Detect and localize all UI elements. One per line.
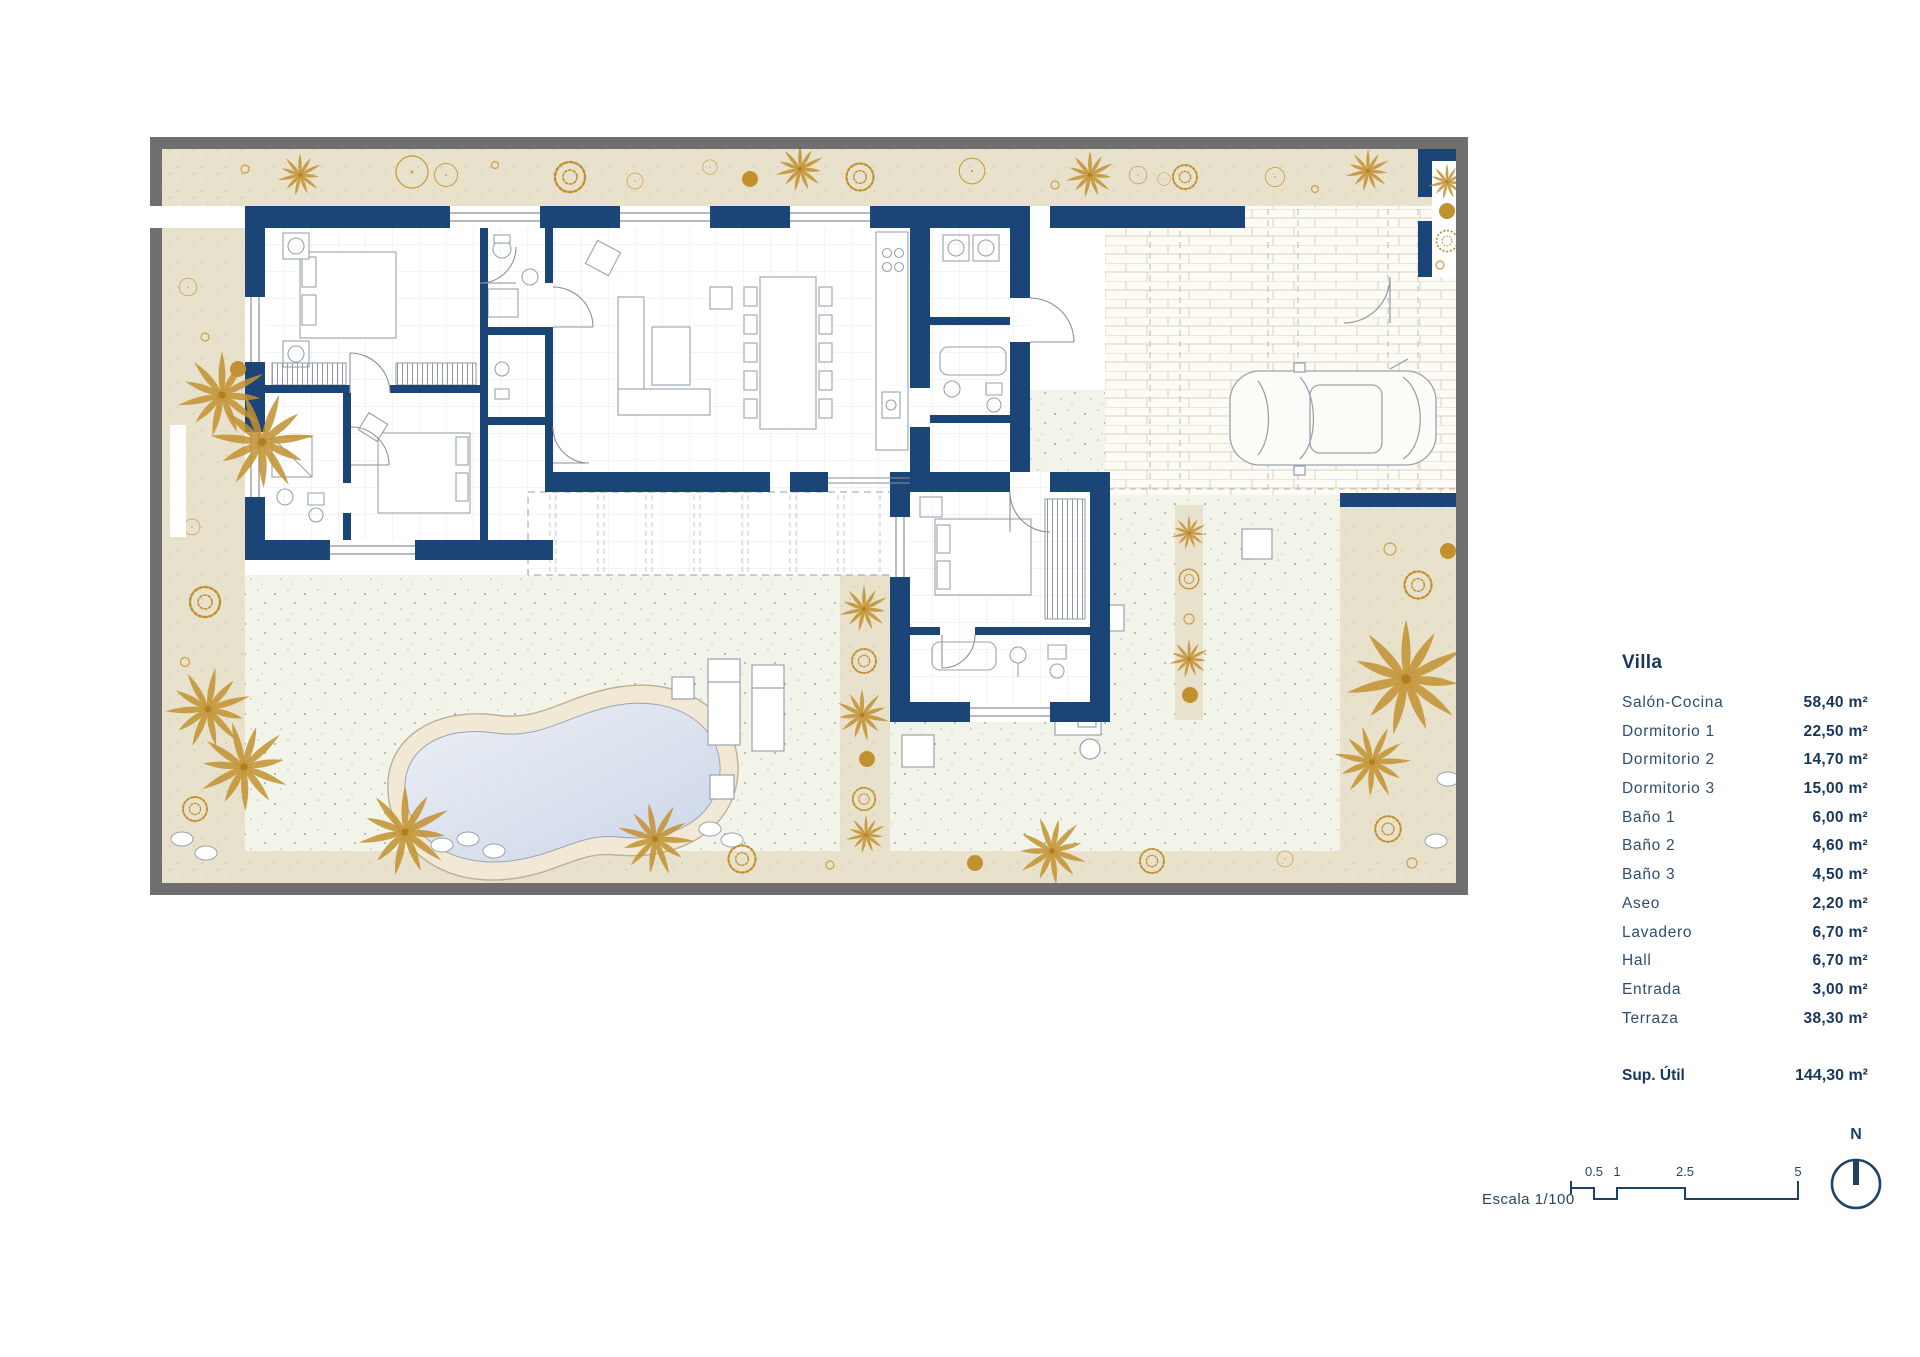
legend-row: Hall 6,70 m² bbox=[1622, 947, 1868, 976]
room-area: 15,00 m² bbox=[1804, 775, 1868, 804]
scale-bar: 0.5 1 2.5 5 bbox=[1566, 1164, 1818, 1214]
room-area: 6,00 m² bbox=[1812, 804, 1868, 833]
room-label: Baño 3 bbox=[1622, 861, 1675, 890]
room-label: Dormitorio 3 bbox=[1622, 775, 1715, 804]
room-label: Baño 1 bbox=[1622, 804, 1675, 833]
legend-row: Baño 2 4,60 m² bbox=[1622, 832, 1868, 861]
room-area: 6,70 m² bbox=[1812, 947, 1868, 976]
car bbox=[1230, 359, 1436, 475]
legend-row: Dormitorio 3 15,00 m² bbox=[1622, 775, 1868, 804]
legend-rows: Salón-Cocina 58,40 m² Dormitorio 1 22,50… bbox=[1622, 689, 1868, 1033]
room-label: Terraza bbox=[1622, 1005, 1679, 1034]
legend-row: Dormitorio 1 22,50 m² bbox=[1622, 718, 1868, 747]
legend-row: Terraza 38,30 m² bbox=[1622, 1005, 1868, 1034]
legend-row: Entrada 3,00 m² bbox=[1622, 976, 1868, 1005]
room-area: 38,30 m² bbox=[1804, 1005, 1868, 1034]
floor-plan bbox=[150, 137, 1468, 895]
scale-bar-graphic bbox=[1566, 1164, 1818, 1214]
room-label: Hall bbox=[1622, 947, 1652, 976]
legend-title: Villa bbox=[1622, 652, 1868, 674]
floor-plan-svg bbox=[150, 137, 1468, 895]
room-area: 4,60 m² bbox=[1812, 832, 1868, 861]
room-label: Dormitorio 2 bbox=[1622, 746, 1715, 775]
room-label: Entrada bbox=[1622, 976, 1681, 1005]
legend-total-label: Sup. Útil bbox=[1622, 1067, 1685, 1085]
room-area: 14,70 m² bbox=[1804, 746, 1868, 775]
legend-row: Dormitorio 2 14,70 m² bbox=[1622, 746, 1868, 775]
legend: Villa Salón-Cocina 58,40 m² Dormitorio 1… bbox=[1622, 652, 1868, 1085]
room-label: Salón-Cocina bbox=[1622, 689, 1723, 718]
room-area: 6,70 m² bbox=[1812, 919, 1868, 948]
north-label: N bbox=[1850, 1126, 1862, 1144]
legend-row: Lavadero 6,70 m² bbox=[1622, 919, 1868, 948]
room-label: Lavadero bbox=[1622, 919, 1692, 948]
legend-row: Salón-Cocina 58,40 m² bbox=[1622, 689, 1868, 718]
scale-label: Escala 1/100 bbox=[1482, 1191, 1575, 1208]
room-label: Aseo bbox=[1622, 890, 1660, 919]
room-area: 58,40 m² bbox=[1804, 689, 1868, 718]
legend-total-value: 144,30 m² bbox=[1795, 1067, 1868, 1085]
room-area: 2,20 m² bbox=[1812, 890, 1868, 919]
room-label: Baño 2 bbox=[1622, 832, 1675, 861]
legend-total: Sup. Útil 144,30 m² bbox=[1622, 1067, 1868, 1085]
room-label: Dormitorio 1 bbox=[1622, 718, 1715, 747]
room-area: 3,00 m² bbox=[1812, 976, 1868, 1005]
legend-row: Aseo 2,20 m² bbox=[1622, 890, 1868, 919]
legend-row: Baño 1 6,00 m² bbox=[1622, 804, 1868, 833]
north-arrow: N bbox=[1813, 1126, 1903, 1226]
room-area: 4,50 m² bbox=[1812, 861, 1868, 890]
legend-row: Baño 3 4,50 m² bbox=[1622, 861, 1868, 890]
pergola bbox=[528, 492, 895, 575]
room-area: 22,50 m² bbox=[1804, 718, 1868, 747]
